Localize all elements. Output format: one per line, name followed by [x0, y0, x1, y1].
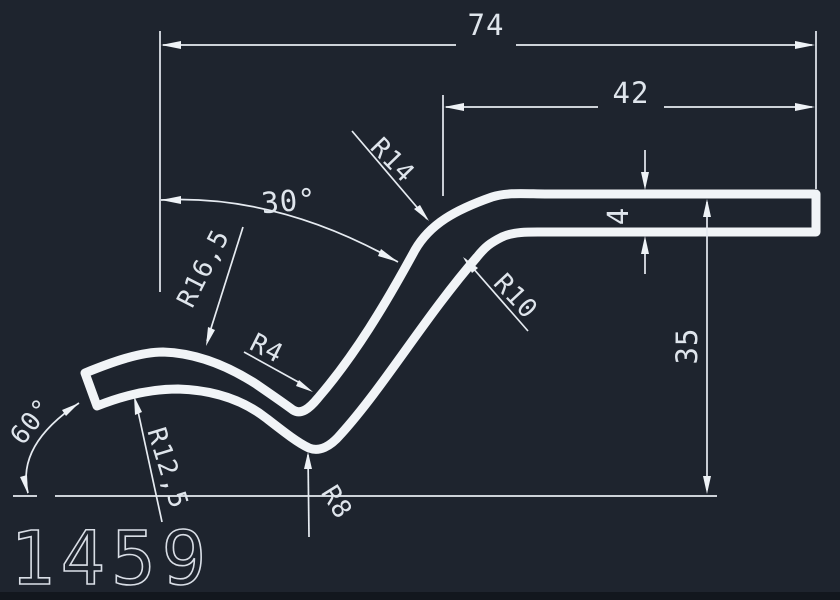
canvas-background — [0, 0, 840, 600]
dim-text-35: 35 — [670, 328, 704, 365]
dim-text-30deg: 30° — [260, 182, 318, 221]
part-number-label[interactable]: 1459 — [10, 516, 212, 600]
dim-text-42: 42 — [613, 76, 650, 110]
dim-text-4: 4 — [601, 207, 635, 225]
cad-viewport[interactable]: 74 42 30° R14 R10 4 3 — [0, 0, 840, 600]
drawing-canvas[interactable]: 74 42 30° R14 R10 4 3 — [0, 0, 840, 600]
dim-text-74: 74 — [468, 8, 505, 42]
